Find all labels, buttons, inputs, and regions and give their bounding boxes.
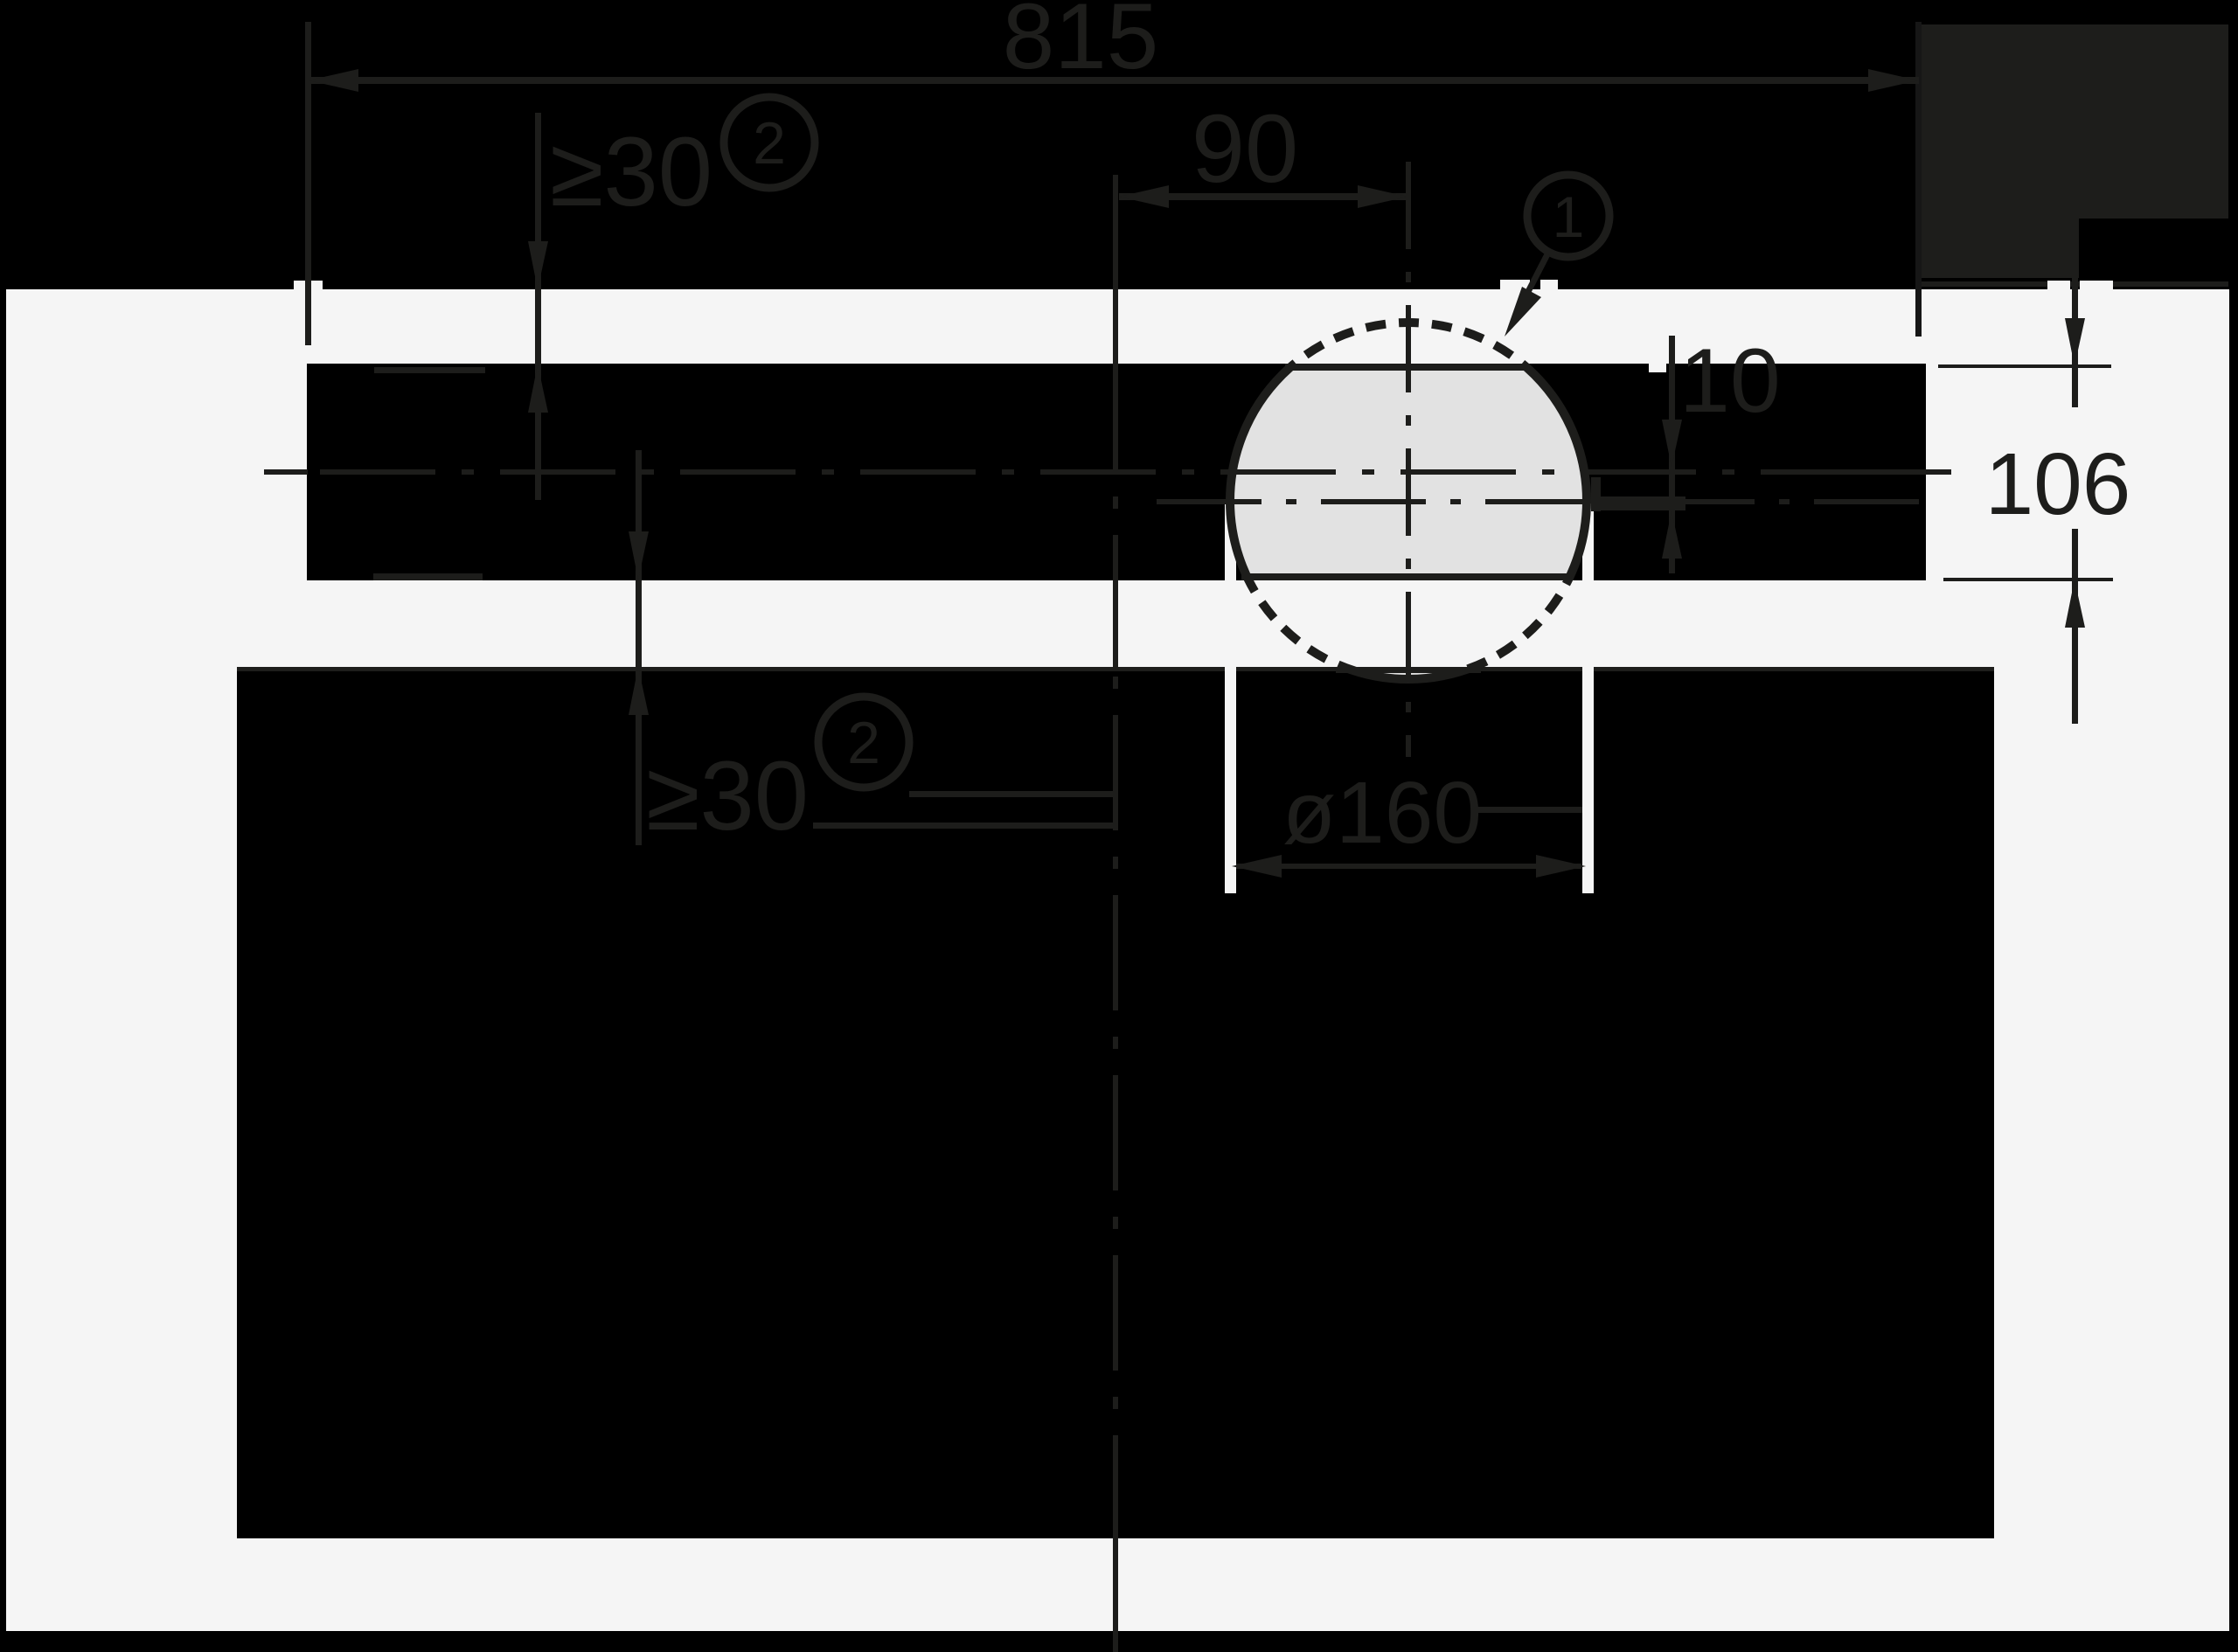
svg-text:≥30: ≥30: [646, 741, 809, 850]
svg-text:2: 2: [847, 710, 880, 776]
svg-text:815: 815: [1003, 0, 1159, 88]
svg-text:≥30: ≥30: [550, 117, 712, 226]
svg-text:10: 10: [1679, 330, 1781, 432]
svg-text:1: 1: [1553, 184, 1585, 249]
svg-text:ø160: ø160: [1282, 764, 1482, 862]
svg-text:2: 2: [753, 110, 786, 177]
svg-text:106: 106: [1985, 435, 2131, 533]
svg-text:90: 90: [1192, 95, 1298, 203]
